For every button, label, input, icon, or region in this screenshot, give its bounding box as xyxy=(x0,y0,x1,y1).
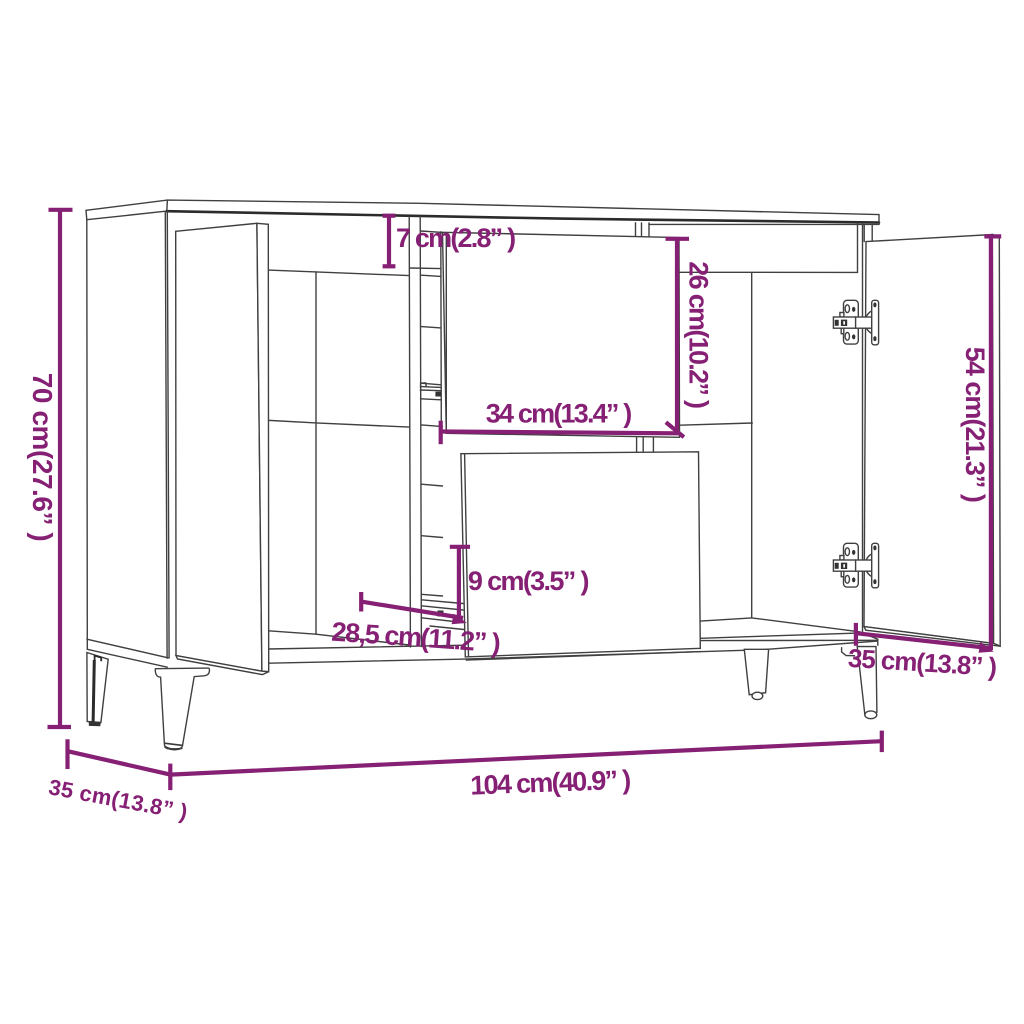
svg-text:7 cm(2.8” ): 7 cm(2.8” ) xyxy=(396,223,515,253)
svg-text:54 cm(21.3” ): 54 cm(21.3” ) xyxy=(960,347,990,502)
svg-text:26 cm(10.2” ): 26 cm(10.2” ) xyxy=(684,261,714,408)
svg-text:104 cm(40.9” ): 104 cm(40.9” ) xyxy=(470,765,631,801)
svg-text:70 cm(27.6” ): 70 cm(27.6” ) xyxy=(27,373,58,541)
svg-text:9 cm(3.5” ): 9 cm(3.5” ) xyxy=(468,566,589,596)
svg-text:34 cm(13.4” ): 34 cm(13.4” ) xyxy=(486,398,631,428)
